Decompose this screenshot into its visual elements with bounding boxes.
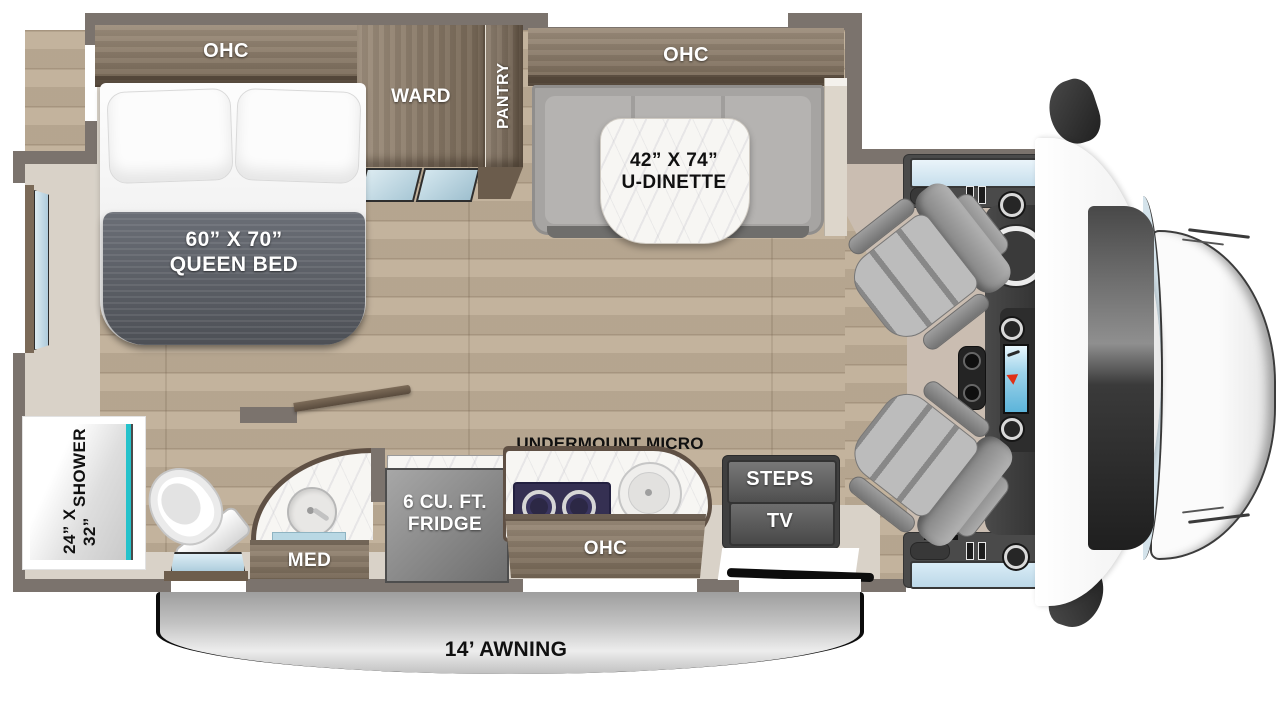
bed-pillow-right — [234, 88, 361, 184]
pantry-label: PANTRY — [486, 25, 523, 167]
cab-door-bottom-lock-pins2 — [978, 542, 986, 560]
dinette-size-text: 42” X 74” — [600, 150, 748, 172]
hood — [1150, 230, 1276, 560]
dash-cupholder-top — [1000, 193, 1024, 217]
wall-right-upper — [845, 13, 862, 155]
window-opening-dinette — [548, 13, 788, 27]
kitchen-sink-drain — [645, 489, 652, 496]
shower-name-text: SHOWER — [70, 428, 90, 507]
fridge-label: 6 CU. FT. FRIDGE — [385, 492, 505, 537]
bedroom-window-frame — [25, 185, 34, 353]
dinette-table-label: 42” X 74” U-DINETTE — [600, 150, 748, 195]
bedroom-ohc-label: OHC — [95, 40, 357, 64]
kitchen-partition-stub — [371, 448, 385, 502]
cab-door-top-lock-pins2 — [978, 186, 986, 204]
bed-name-text: QUEEN BED — [103, 253, 365, 278]
dash-cupholder-upper — [1001, 318, 1023, 340]
dash-cupholder-bottom — [1004, 545, 1028, 569]
dash-control-knob-top — [963, 352, 981, 370]
med-label: MED — [250, 550, 369, 572]
tv-label: TV — [729, 510, 831, 534]
steps-label: STEPS — [727, 468, 833, 492]
queen-bed-label: 60” X 70” QUEEN BED — [103, 228, 365, 278]
window-opening-galley — [523, 579, 697, 592]
wardrobe-drawer-right — [416, 168, 480, 202]
dinette-name-text: U-DINETTE — [600, 172, 748, 194]
wardrobe-label: WARD — [357, 86, 485, 108]
fridge-size-text: 6 CU. FT. — [385, 492, 505, 514]
bed-pillow-left — [106, 88, 233, 184]
bedroom-window-glass — [34, 190, 49, 350]
kitchen-ohc-label: OHC — [505, 538, 706, 560]
entry-threshold — [739, 579, 861, 592]
shower-size-text: 24” X 32” — [60, 507, 100, 556]
windshield — [1088, 206, 1154, 550]
rv-floorplan: OHC WARD PANTRY 60” X 70” QUEEN BED OHC … — [0, 0, 1280, 720]
awning-label: 14’ AWNING — [156, 638, 856, 663]
dinette-end-panel — [824, 78, 847, 236]
dash-control-knob-bottom — [963, 384, 981, 402]
window-opening-bedroom — [13, 183, 25, 353]
cab-door-bottom-lock-pins — [966, 542, 974, 560]
bed-size-text: 60” X 70” — [103, 228, 365, 253]
shower-label: 24” X 32” SHOWER — [34, 428, 126, 556]
hood-speed-line-top — [1188, 228, 1250, 239]
bath-partition-wall — [240, 407, 297, 423]
shower-glass-edge — [131, 424, 133, 560]
wall-left-jut — [13, 151, 97, 164]
wardrobe-drawer-left — [358, 168, 422, 202]
bath-window-sill — [164, 571, 248, 581]
fridge-name-text: FRIDGE — [385, 514, 505, 536]
dinette-ohc-label: OHC — [528, 44, 844, 68]
